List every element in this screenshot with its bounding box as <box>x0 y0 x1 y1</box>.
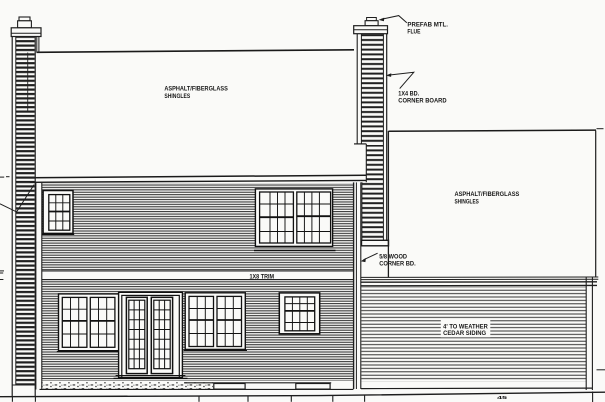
svg-text:CEDAR SIDING: CEDAR SIDING <box>443 331 486 337</box>
svg-text:45: 45 <box>497 395 508 400</box>
svg-text:SHINGLES: SHINGLES <box>455 199 479 206</box>
svg-text:CORNER BOARD: CORNER BOARD <box>398 97 447 104</box>
svg-text:CORNER BD.: CORNER BD. <box>379 261 416 268</box>
svg-text:1X4 BD.: 1X4 BD. <box>398 90 419 97</box>
svg-text:SHINGLES: SHINGLES <box>164 93 190 100</box>
svg-text:FLUE: FLUE <box>407 29 420 36</box>
svg-text:1X8 TRIM: 1X8 TRIM <box>250 275 275 281</box>
svg-text:ASPHALT/FIBERGLASS: ASPHALT/FIBERGLASS <box>455 191 520 198</box>
svg-text:4' TO WEATHER: 4' TO WEATHER <box>443 324 488 330</box>
svg-text:ASPHALT/FIBERGLASS: ASPHALT/FIBERGLASS <box>164 85 227 92</box>
svg-text:5/8 WOOD: 5/8 WOOD <box>379 253 407 260</box>
